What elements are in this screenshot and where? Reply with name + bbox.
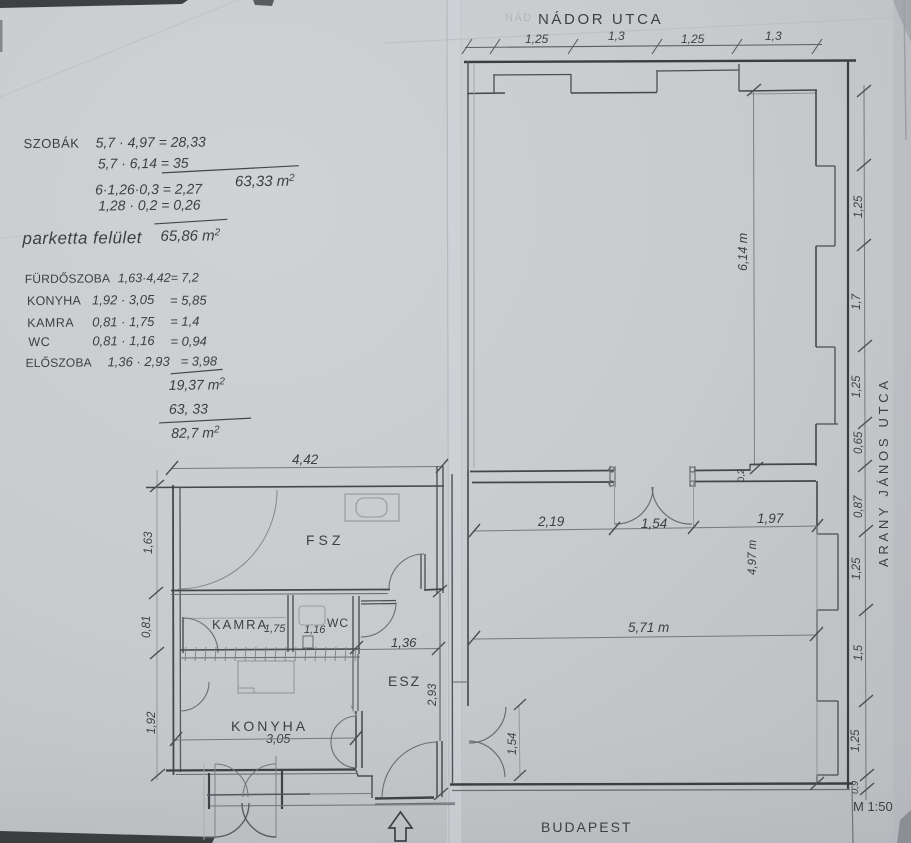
svg-text:0,2: 0,2 (736, 469, 747, 482)
svg-text:= 5,85: = 5,85 (170, 293, 207, 308)
svg-text:1,54: 1,54 (641, 516, 667, 531)
svg-text:SZOBÁK: SZOBÁK (24, 136, 80, 151)
svg-text:WC: WC (28, 335, 50, 349)
svg-text:1,25: 1,25 (850, 729, 862, 752)
svg-text:0,81: 0,81 (141, 616, 153, 638)
svg-text:NÁDOR UTCA: NÁDOR UTCA (538, 11, 663, 28)
svg-text:65,86 m2: 65,86 m2 (160, 227, 220, 245)
svg-text:63,33 m2: 63,33 m2 (235, 173, 295, 191)
svg-text:2,93: 2,93 (427, 683, 439, 707)
svg-text:0,87: 0,87 (853, 495, 865, 518)
svg-text:1,97: 1,97 (757, 511, 784, 526)
svg-text:M 1:50: M 1:50 (853, 799, 893, 814)
svg-text:KAMRA: KAMRA (27, 316, 74, 330)
svg-text:1,36 · 2,93: 1,36 · 2,93 (107, 354, 170, 370)
svg-text:1,63: 1,63 (143, 531, 155, 554)
svg-text:5,71 m: 5,71 m (628, 620, 669, 635)
svg-text:FÜRDŐSZOBA: FÜRDŐSZOBA (25, 270, 110, 286)
svg-text:= 3,98: = 3,98 (180, 353, 217, 368)
svg-text:0,65: 0,65 (853, 431, 865, 454)
svg-text:1,3: 1,3 (765, 29, 782, 43)
svg-text:19,37 m2: 19,37 m2 (169, 376, 226, 392)
svg-text:1,25: 1,25 (851, 375, 863, 398)
svg-text:1,3: 1,3 (608, 29, 625, 43)
svg-text:6,14 m: 6,14 m (736, 233, 750, 271)
svg-text:FSZ: FSZ (306, 532, 344, 548)
svg-text:1,16: 1,16 (304, 624, 326, 636)
svg-text:1,63·4,42= 7,2: 1,63·4,42= 7,2 (118, 271, 199, 286)
svg-text:4,97 m: 4,97 m (747, 539, 759, 575)
svg-text:1,92: 1,92 (146, 711, 158, 734)
svg-text:1,25: 1,25 (525, 32, 549, 46)
svg-text:= 0,94: = 0,94 (170, 334, 207, 349)
svg-text:2,19: 2,19 (537, 514, 565, 529)
svg-text:63, 33: 63, 33 (169, 400, 208, 416)
svg-text:1,25: 1,25 (853, 195, 865, 218)
svg-text:4,42: 4,42 (292, 452, 319, 467)
svg-text:1,75: 1,75 (264, 623, 286, 635)
svg-text:0,81 · 1,75: 0,81 · 1,75 (92, 314, 155, 330)
svg-text:1,5: 1,5 (853, 644, 865, 661)
svg-text:1,36: 1,36 (391, 635, 417, 650)
svg-text:1,7: 1,7 (851, 293, 863, 310)
svg-text:1,25: 1,25 (851, 557, 863, 580)
svg-text:1,92 · 3,05: 1,92 · 3,05 (92, 292, 155, 308)
svg-text:= 1,4: = 1,4 (170, 314, 199, 329)
svg-text:KONYHA: KONYHA (27, 294, 82, 308)
svg-text:KAMRA: KAMRA (212, 617, 268, 632)
svg-text:BUDAPEST: BUDAPEST (541, 819, 632, 835)
svg-text:5,7 · 4,97 = 28,33: 5,7 · 4,97 = 28,33 (96, 134, 206, 151)
svg-text:ARANY JÁNOS UTCA: ARANY JÁNOS UTCA (876, 377, 891, 567)
svg-text:WC: WC (327, 616, 349, 630)
svg-text:82,7 m2: 82,7 m2 (171, 424, 220, 440)
svg-text:ELŐSZOBA: ELŐSZOBA (25, 355, 91, 371)
svg-text:5,7 · 6,14 = 35: 5,7 · 6,14 = 35 (98, 155, 189, 172)
svg-text:ESZ: ESZ (388, 673, 421, 689)
svg-text:1,25: 1,25 (681, 32, 705, 46)
svg-text:1,28 · 0,2 = 0,26: 1,28 · 0,2 = 0,26 (98, 197, 201, 214)
svg-text:1,54: 1,54 (507, 733, 519, 755)
svg-text:parketta felület: parketta felület (21, 228, 142, 248)
svg-text:6·1,26·0,3 = 2,27: 6·1,26·0,3 = 2,27 (95, 181, 203, 198)
svg-text:0,81 · 1,16: 0,81 · 1,16 (92, 333, 155, 349)
svg-text:NÁD: NÁD (505, 11, 533, 24)
